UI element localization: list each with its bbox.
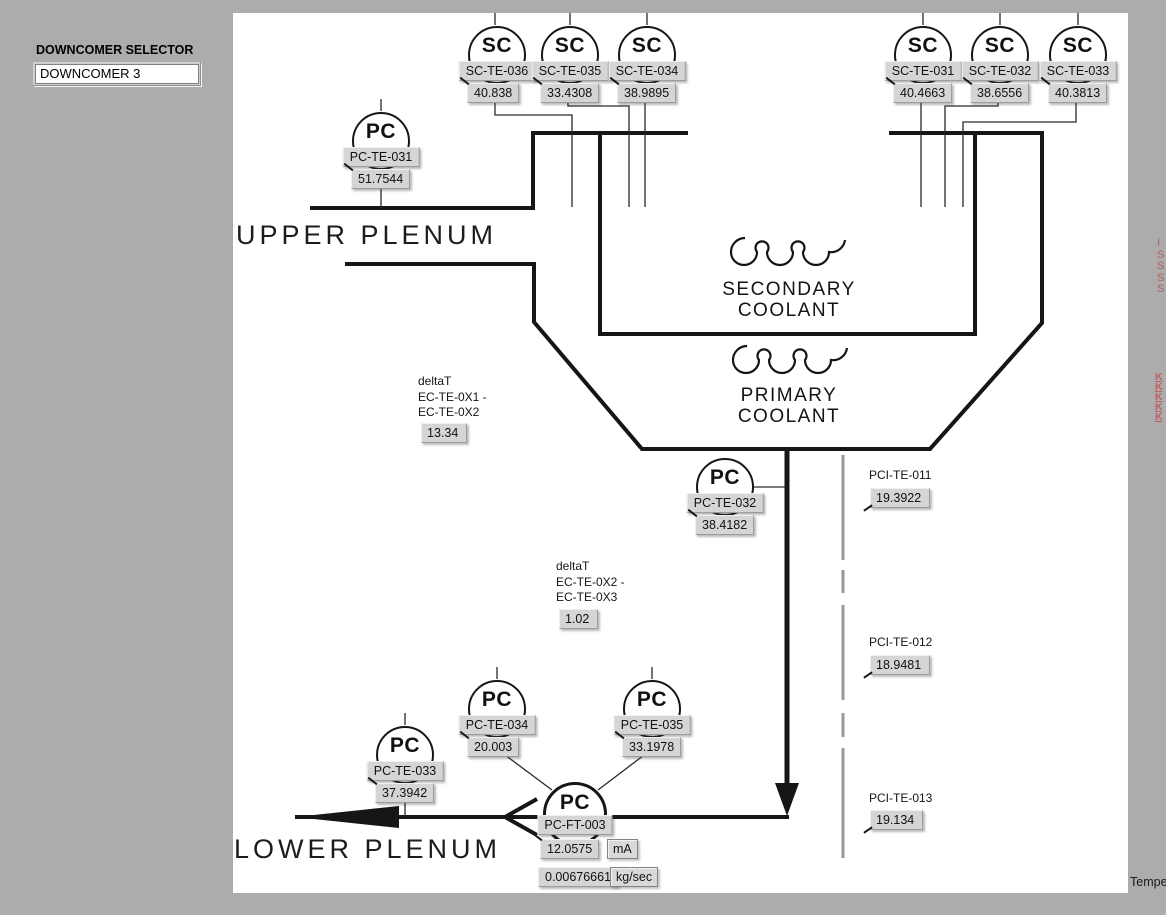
flow-rate-unit: kg/sec [610, 867, 658, 887]
sensor-value: 33.4308 [540, 83, 599, 103]
sensor-symbol: PC [710, 466, 740, 490]
sensor-tag: SC-TE-034 [609, 61, 686, 81]
sensor-tag: SC-TE-033 [1040, 61, 1117, 81]
sensor-tag: SC-TE-036 [459, 61, 536, 81]
sensor-tag: PC-TE-031 [343, 147, 420, 167]
flow-current-unit: mA [607, 839, 638, 859]
deltaT-2-label: deltaT EC-TE-0X2 - EC-TE-0X3 [556, 559, 625, 606]
PCI-TE-011-value: 19.3922 [870, 488, 930, 508]
PCI-TE-012-tag: PCI-TE-012 [869, 635, 932, 649]
left-arrowhead [295, 806, 399, 828]
sensor-value: 40.838 [467, 83, 519, 103]
downcomer-selector-label: DOWNCOMER SELECTOR [36, 43, 193, 57]
labview-front-panel: { "selector": { "label": "DOWNCOMER SELE… [0, 0, 1166, 915]
sensor-tag: PC-TE-032 [687, 493, 764, 513]
sensor-symbol: SC [632, 34, 662, 58]
sensor-symbol: PC [637, 688, 667, 712]
lower-plenum-label: LOWER PLENUM [234, 834, 501, 865]
deltaT-2-value: 1.02 [559, 609, 598, 629]
sensor-symbol: PC [390, 734, 420, 758]
sensor-circle: PC [543, 782, 607, 846]
secondary-coolant-coil [731, 238, 845, 265]
sensor-value: 51.7544 [351, 169, 410, 189]
clipped-right-text-2: K K K K K [1155, 372, 1163, 422]
sensor-value: 20.003 [467, 737, 519, 757]
secondary-coolant-label: SECONDARY COOLANT [722, 279, 856, 321]
clipped-right-text-1: I S S S S [1157, 238, 1164, 296]
sensor-value: 38.4182 [695, 515, 754, 535]
sensor-tag: SC-TE-032 [962, 61, 1039, 81]
sensor-symbol: SC [482, 34, 512, 58]
sensor-symbol: SC [1063, 34, 1093, 58]
deltaT-1-label: deltaT EC-TE-0X1 - EC-TE-0X2 [418, 374, 487, 421]
primary-coolant-label: PRIMARY COOLANT [738, 385, 840, 427]
PCI-TE-013-value: 19.134 [870, 810, 923, 830]
sensor-tag: PC-TE-034 [459, 715, 536, 735]
down-arrowhead [775, 783, 799, 816]
sensor-tag: PC-TE-033 [367, 761, 444, 781]
downcomer-selector[interactable]: DOWNCOMER 3 [33, 62, 201, 86]
sensor-value: 33.1978 [622, 737, 681, 757]
sensor-symbol: PC [366, 120, 396, 144]
diagram-panel: UPPER PLENUM LOWER PLENUM SECONDARY COOL… [233, 13, 1128, 893]
sensor-symbol: PC [482, 688, 512, 712]
upper-plenum-label: UPPER PLENUM [236, 220, 497, 251]
sensor-value: 38.9895 [617, 83, 676, 103]
corner-clipped-text: Tempe [1130, 875, 1166, 889]
PCI-TE-012-value: 18.9481 [870, 655, 930, 675]
flow-current-value: 12.0575 [540, 839, 599, 859]
primary-coolant-coil [733, 346, 847, 373]
sensor-symbol: PC [560, 791, 590, 815]
deltaT-1-value: 13.34 [421, 423, 467, 443]
sensor-symbol: SC [555, 34, 585, 58]
downcomer-selector-value[interactable]: DOWNCOMER 3 [35, 64, 199, 84]
flow-rate-value: 0.00676661 [538, 867, 618, 887]
sensor-tag: SC-TE-035 [532, 61, 609, 81]
sensor-value: 40.4663 [893, 83, 952, 103]
PCI-TE-011-tag: PCI-TE-011 [869, 468, 931, 482]
sensor-value: 37.3942 [375, 783, 434, 803]
sensor-symbol: SC [908, 34, 938, 58]
sensor-symbol: SC [985, 34, 1015, 58]
sensor-tag: SC-TE-031 [885, 61, 962, 81]
sensor-value: 38.6556 [970, 83, 1029, 103]
PCI-TE-013-tag: PCI-TE-013 [869, 791, 932, 805]
sensor-value: 40.3813 [1048, 83, 1107, 103]
sensor-tag: PC-TE-035 [614, 715, 691, 735]
sensor-tag: PC-FT-003 [537, 815, 612, 835]
